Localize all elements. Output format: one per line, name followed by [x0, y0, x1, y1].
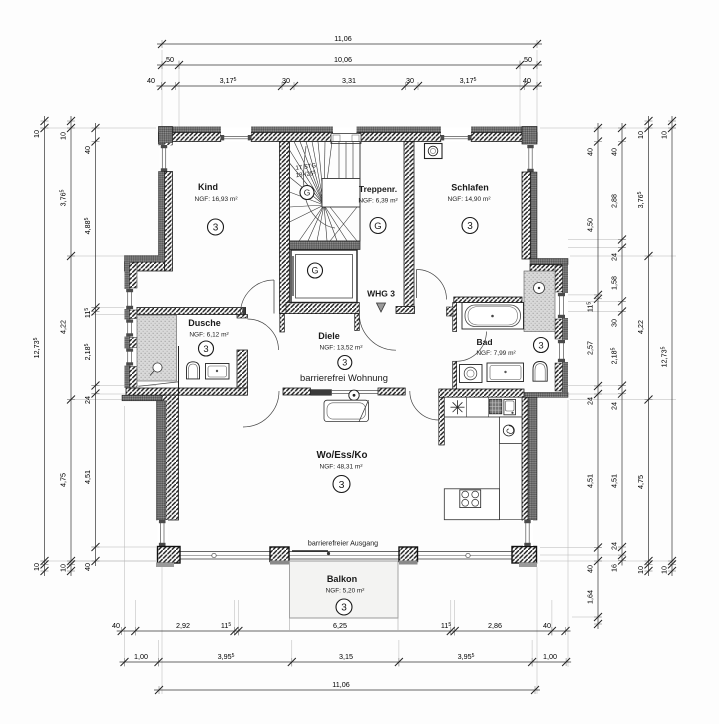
svg-text:1,64: 1,64: [586, 590, 595, 604]
svg-text:50: 50: [524, 55, 532, 64]
svg-text:40: 40: [586, 565, 595, 573]
svg-text:4,51: 4,51: [610, 474, 619, 488]
svg-text:Treppenr.: Treppenr.: [359, 184, 397, 194]
svg-text:NGF: 16,93 m²: NGF: 16,93 m²: [195, 196, 239, 203]
svg-text:50: 50: [166, 55, 174, 64]
svg-text:1,00: 1,00: [134, 652, 148, 661]
svg-text:24: 24: [610, 402, 619, 410]
svg-text:3: 3: [203, 344, 208, 355]
svg-text:40: 40: [147, 76, 155, 85]
svg-text:4,22: 4,22: [59, 320, 68, 334]
svg-text:1,00: 1,00: [543, 652, 557, 661]
svg-text:Wo/Ess/Ko: Wo/Ess/Ko: [317, 450, 368, 461]
svg-text:30: 30: [406, 76, 414, 85]
svg-text:4,75: 4,75: [59, 473, 68, 487]
svg-text:11,06: 11,06: [334, 34, 351, 43]
svg-text:10: 10: [660, 131, 669, 139]
svg-text:10: 10: [636, 566, 645, 574]
svg-text:12,735: 12,735: [660, 346, 669, 367]
svg-text:4,75: 4,75: [636, 475, 645, 489]
svg-text:NGF: 13,52 m²: NGF: 13,52 m²: [320, 345, 364, 352]
svg-text:40: 40: [543, 621, 551, 630]
svg-text:NGF: 14,90 m²: NGF: 14,90 m²: [448, 196, 492, 203]
svg-text:3: 3: [467, 221, 473, 232]
svg-text:3: 3: [213, 223, 219, 234]
svg-text:NGF: 5,20 m²: NGF: 5,20 m²: [326, 588, 365, 595]
svg-text:40: 40: [523, 76, 531, 85]
svg-text:1,58: 1,58: [610, 276, 619, 290]
svg-text:NGF: 6,12 m²: NGF: 6,12 m²: [189, 332, 229, 339]
svg-text:Bad: Bad: [476, 337, 492, 347]
svg-text:3: 3: [339, 479, 345, 491]
svg-text:2,88: 2,88: [610, 194, 619, 208]
svg-text:24: 24: [586, 397, 595, 405]
svg-text:Kind: Kind: [198, 182, 218, 192]
svg-text:10: 10: [32, 563, 41, 571]
svg-text:10: 10: [32, 130, 41, 138]
svg-text:4,51: 4,51: [586, 474, 595, 488]
svg-text:G: G: [374, 221, 381, 232]
svg-text:40: 40: [610, 148, 619, 156]
svg-text:NGF: 6,39 m²: NGF: 6,39 m²: [358, 198, 398, 205]
svg-text:G: G: [311, 266, 318, 276]
svg-text:Dusche: Dusche: [188, 318, 221, 328]
svg-text:10: 10: [59, 132, 68, 140]
svg-text:24: 24: [83, 396, 92, 404]
svg-text:4,51: 4,51: [83, 470, 92, 484]
svg-text:3,15: 3,15: [339, 652, 353, 661]
svg-text:3,31: 3,31: [342, 76, 356, 85]
svg-text:10: 10: [660, 566, 669, 574]
svg-text:10: 10: [59, 564, 68, 572]
svg-text:barrierefreier Ausgang: barrierefreier Ausgang: [308, 540, 378, 548]
svg-text:40: 40: [586, 148, 595, 156]
svg-text:6,25: 6,25: [333, 621, 347, 630]
svg-text:16: 16: [610, 564, 619, 572]
svg-text:Diele: Diele: [318, 331, 340, 341]
svg-text:NGF: 48,31 m²: NGF: 48,31 m²: [320, 464, 364, 471]
svg-text:NGF: 7,99 m²: NGF: 7,99 m²: [476, 350, 516, 357]
svg-text:10: 10: [636, 131, 645, 139]
svg-text:40: 40: [112, 621, 120, 630]
svg-text:WHG 3: WHG 3: [367, 289, 395, 299]
svg-text:11,06: 11,06: [332, 680, 349, 689]
svg-text:2,57: 2,57: [586, 341, 595, 355]
svg-text:Balkon: Balkon: [327, 574, 357, 584]
svg-text:24: 24: [610, 253, 619, 261]
svg-text:2,92: 2,92: [176, 621, 190, 630]
svg-text:2,86: 2,86: [488, 621, 502, 630]
svg-text:30: 30: [610, 319, 619, 327]
svg-text:4,22: 4,22: [636, 320, 645, 334]
svg-text:barrierefrei Wohnung: barrierefrei Wohnung: [300, 372, 388, 383]
svg-text:24: 24: [610, 542, 619, 550]
svg-text:3: 3: [538, 340, 543, 351]
svg-text:40: 40: [83, 563, 92, 571]
svg-text:3: 3: [341, 603, 347, 614]
svg-text:30: 30: [282, 76, 290, 85]
svg-text:Schlafen: Schlafen: [451, 183, 489, 193]
svg-text:40: 40: [83, 146, 92, 154]
svg-text:4,50: 4,50: [586, 218, 595, 232]
svg-text:3: 3: [342, 358, 347, 368]
svg-text:12,735: 12,735: [32, 337, 41, 358]
svg-text:G: G: [304, 188, 311, 198]
svg-text:10,06: 10,06: [334, 55, 352, 64]
